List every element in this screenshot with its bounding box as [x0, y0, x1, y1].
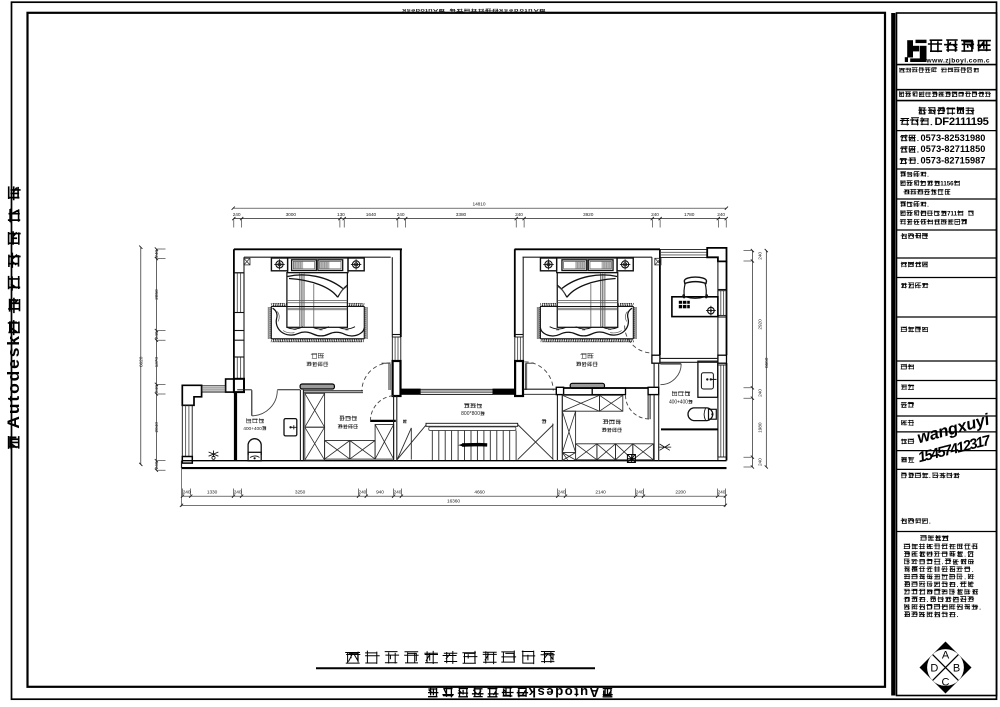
svg-text:240: 240: [183, 490, 191, 496]
svg-text:240: 240: [154, 331, 160, 339]
svg-text:240: 240: [717, 212, 725, 218]
svg-text:1980: 1980: [758, 422, 764, 433]
svg-text:240: 240: [234, 490, 242, 496]
svg-text:A: A: [942, 650, 950, 662]
svg-text:3250: 3250: [295, 490, 306, 496]
svg-text:Autodesk: Autodesk: [498, 7, 538, 12]
svg-text:3000: 3000: [286, 212, 297, 218]
svg-text:2040: 2040: [154, 422, 160, 433]
svg-text:1156: 1156: [940, 180, 954, 187]
svg-text:1780: 1780: [684, 212, 695, 218]
svg-text:240: 240: [397, 212, 405, 218]
svg-text:D: D: [930, 663, 938, 675]
svg-text:3920: 3920: [583, 212, 594, 218]
svg-text:240: 240: [636, 490, 644, 496]
svg-text:3380: 3380: [456, 212, 467, 218]
svg-text:400+400: 400+400: [669, 399, 688, 405]
svg-text:DF2111195: DF2111195: [935, 116, 989, 128]
svg-text:711: 711: [947, 210, 958, 217]
svg-text:240: 240: [154, 461, 160, 469]
svg-text:240: 240: [233, 212, 241, 218]
svg-text:1330: 1330: [207, 490, 218, 496]
svg-text:940: 940: [376, 490, 384, 496]
svg-text:0573-82531980: 0573-82531980: [921, 133, 986, 143]
svg-text:14810: 14810: [473, 202, 486, 208]
svg-text:6660: 6660: [764, 357, 770, 368]
svg-text:240: 240: [758, 458, 764, 466]
svg-text:240: 240: [154, 385, 160, 393]
svg-text:2850: 2850: [154, 289, 160, 300]
svg-text:240: 240: [359, 490, 367, 496]
svg-text:800*800: 800*800: [461, 411, 480, 417]
svg-text:2200: 2200: [675, 490, 686, 496]
svg-text:240: 240: [758, 252, 764, 260]
svg-text:240: 240: [651, 212, 659, 218]
svg-text:B: B: [953, 663, 960, 675]
svg-text:4660: 4660: [474, 490, 485, 496]
svg-text:240: 240: [718, 490, 726, 496]
svg-text:1370: 1370: [154, 357, 160, 368]
svg-text:130: 130: [337, 212, 345, 218]
svg-text:2920: 2920: [758, 319, 764, 330]
svg-text:240: 240: [394, 490, 402, 496]
svg-text:Autodesk: Autodesk: [402, 7, 439, 12]
svg-text:0573-82715987: 0573-82715987: [921, 156, 986, 166]
svg-text:240: 240: [515, 212, 523, 218]
svg-text:0573-82711850: 0573-82711850: [921, 144, 986, 154]
svg-text:16360: 16360: [447, 499, 460, 505]
svg-text:C: C: [942, 677, 950, 689]
svg-text:400+400: 400+400: [243, 426, 262, 432]
svg-text:240: 240: [154, 250, 160, 258]
svg-text:240: 240: [558, 490, 566, 496]
svg-text:240: 240: [758, 389, 764, 397]
svg-text:Autodesk: Autodesk: [528, 685, 599, 700]
svg-text:www.zjboyi.com.c: www.zjboyi.com.c: [926, 57, 990, 64]
svg-text:6620: 6620: [139, 356, 145, 367]
svg-text:2140: 2140: [595, 490, 606, 496]
svg-text:1640: 1640: [366, 212, 377, 218]
